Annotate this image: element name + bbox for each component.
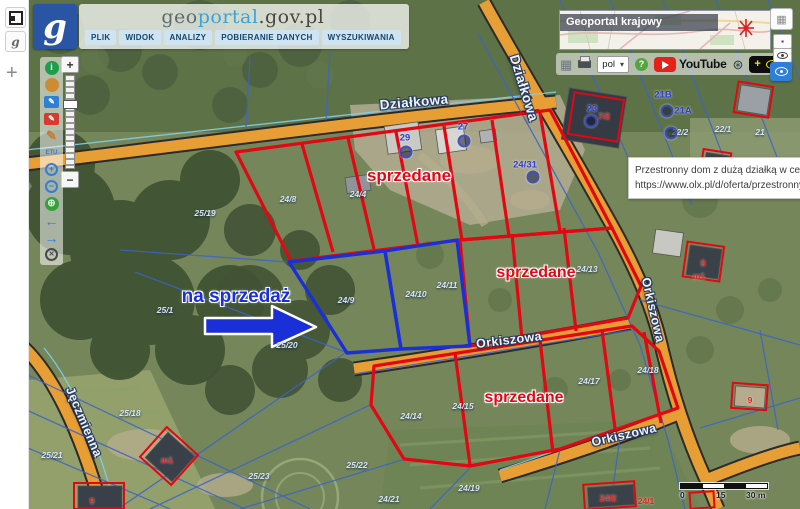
g-icon: g — [11, 35, 19, 49]
zoom-slider: + − — [61, 56, 79, 188]
info-icon[interactable]: i — [42, 60, 61, 75]
full-extent-globe-icon[interactable]: ⊕ — [42, 196, 61, 211]
menu-item-analizy[interactable]: ANALIZY — [164, 30, 213, 45]
eye-icon — [775, 67, 788, 76]
geoportal-app-window: DziałkowaDziałkowaOrkiszowaOrkiszowaOrki… — [0, 0, 800, 509]
next-view-icon[interactable]: → — [42, 230, 61, 245]
crosshair-icon: ✕ — [45, 248, 58, 261]
help-button[interactable]: ? — [635, 58, 648, 71]
add-map-window-icon: ✎ — [44, 96, 59, 108]
scale-labels: 0 15 30 m — [680, 489, 768, 499]
top-right-toolbar: ▦ pol▾ ? YouTube ⊛ + — [556, 53, 788, 75]
map-canvas[interactable] — [0, 0, 800, 509]
draw-measure-icon: ✎ — [45, 129, 59, 143]
geoportal-logo-icon[interactable]: g — [33, 4, 77, 49]
youtube-link[interactable]: YouTube — [654, 57, 726, 72]
zoom-out-icon[interactable]: − — [42, 179, 61, 194]
window-icon — [9, 11, 23, 25]
menu-item-pobieranie-danych[interactable]: POBIERANIE DANYCH — [215, 30, 318, 45]
tooltip-url[interactable]: https://www.olx.pl/d/oferta/przestronny-… — [635, 178, 800, 193]
youtube-play-icon — [654, 57, 676, 72]
language-select[interactable]: pol▾ — [597, 56, 629, 73]
crosshair-icon[interactable]: ✕ — [42, 247, 61, 262]
listing-tooltip: Przestronny dom z dużą działką w centrum… — [628, 157, 800, 199]
menu-item-wyszukiwania[interactable]: WYSZUKIWANIA — [322, 30, 401, 45]
map-tool-strip: i✎✎✎ETU+−⊕←→✕ — [40, 57, 63, 265]
etu-badge-icon: ETU — [45, 146, 59, 160]
eye-icon — [777, 52, 788, 59]
zoom-in-button[interactable]: + — [61, 56, 79, 73]
edge-mini-button[interactable]: ▪ — [773, 34, 792, 49]
zoom-out-icon: − — [45, 180, 58, 193]
previous-view-icon[interactable]: ← — [42, 213, 61, 228]
minimap-title: Geoportal krajowy — [560, 14, 718, 31]
visibility-button[interactable] — [770, 62, 792, 81]
tooltip-title: Przestronny dom z dużą działką w centrum… — [635, 163, 800, 178]
header-brand-bar: g geoportal.gov.pl PLIKWIDOKANALIZYPOBIE… — [33, 4, 409, 49]
contrast-settings-icon[interactable]: ⊛ — [732, 58, 743, 71]
menu-item-plik[interactable]: PLIK — [85, 30, 116, 45]
expand-plus-label[interactable]: + — [6, 62, 18, 85]
full-extent-globe-icon: ⊕ — [45, 197, 59, 211]
menu-item-widok[interactable]: WIDOK — [119, 30, 160, 45]
identify-icon[interactable] — [42, 77, 61, 92]
print-icon[interactable] — [578, 60, 591, 68]
identify-icon — [45, 78, 59, 92]
brand-title: geoportal.gov.pl — [85, 6, 401, 28]
edge-eye-button[interactable] — [773, 48, 792, 63]
remove-map-window-icon[interactable]: ✎ — [42, 111, 61, 126]
minimap-location-marker — [738, 19, 754, 37]
overview-minimap[interactable]: Geoportal krajowy — [559, 10, 771, 50]
chevron-down-icon: ▾ — [620, 60, 624, 69]
zoom-out-button[interactable]: − — [61, 171, 79, 188]
remove-map-window-icon: ✎ — [44, 113, 59, 125]
brand-banner: geoportal.gov.pl PLIKWIDOKANALIZYPOBIERA… — [79, 4, 409, 49]
panel-toggle-button[interactable] — [5, 7, 26, 28]
previous-view-icon: ← — [45, 214, 59, 228]
keyboard-grid-icon[interactable]: ▦ — [560, 58, 572, 71]
draw-measure-icon[interactable]: ✎ — [42, 128, 61, 143]
zoom-slider-track[interactable] — [65, 75, 75, 169]
geoportal-mini-button[interactable]: g — [5, 31, 26, 52]
main-menu-bar: PLIKWIDOKANALIZYPOBIERANIE DANYCHWYSZUKI… — [85, 30, 401, 45]
zoom-in-icon: + — [45, 163, 58, 176]
language-value: pol — [602, 59, 615, 70]
youtube-label: YouTube — [679, 57, 726, 71]
zoom-in-icon[interactable]: + — [42, 162, 61, 177]
next-view-icon: → — [45, 231, 59, 245]
font-increase-icon: + — [754, 59, 760, 70]
etu-badge-icon[interactable]: ETU — [42, 145, 61, 160]
scale-bar: 0 15 30 m — [680, 483, 768, 499]
info-icon: i — [45, 61, 59, 75]
add-map-window-icon[interactable]: ✎ — [42, 94, 61, 109]
zoom-slider-handle[interactable] — [63, 100, 78, 109]
minimap-toggle-button[interactable]: ▦ — [770, 8, 793, 30]
